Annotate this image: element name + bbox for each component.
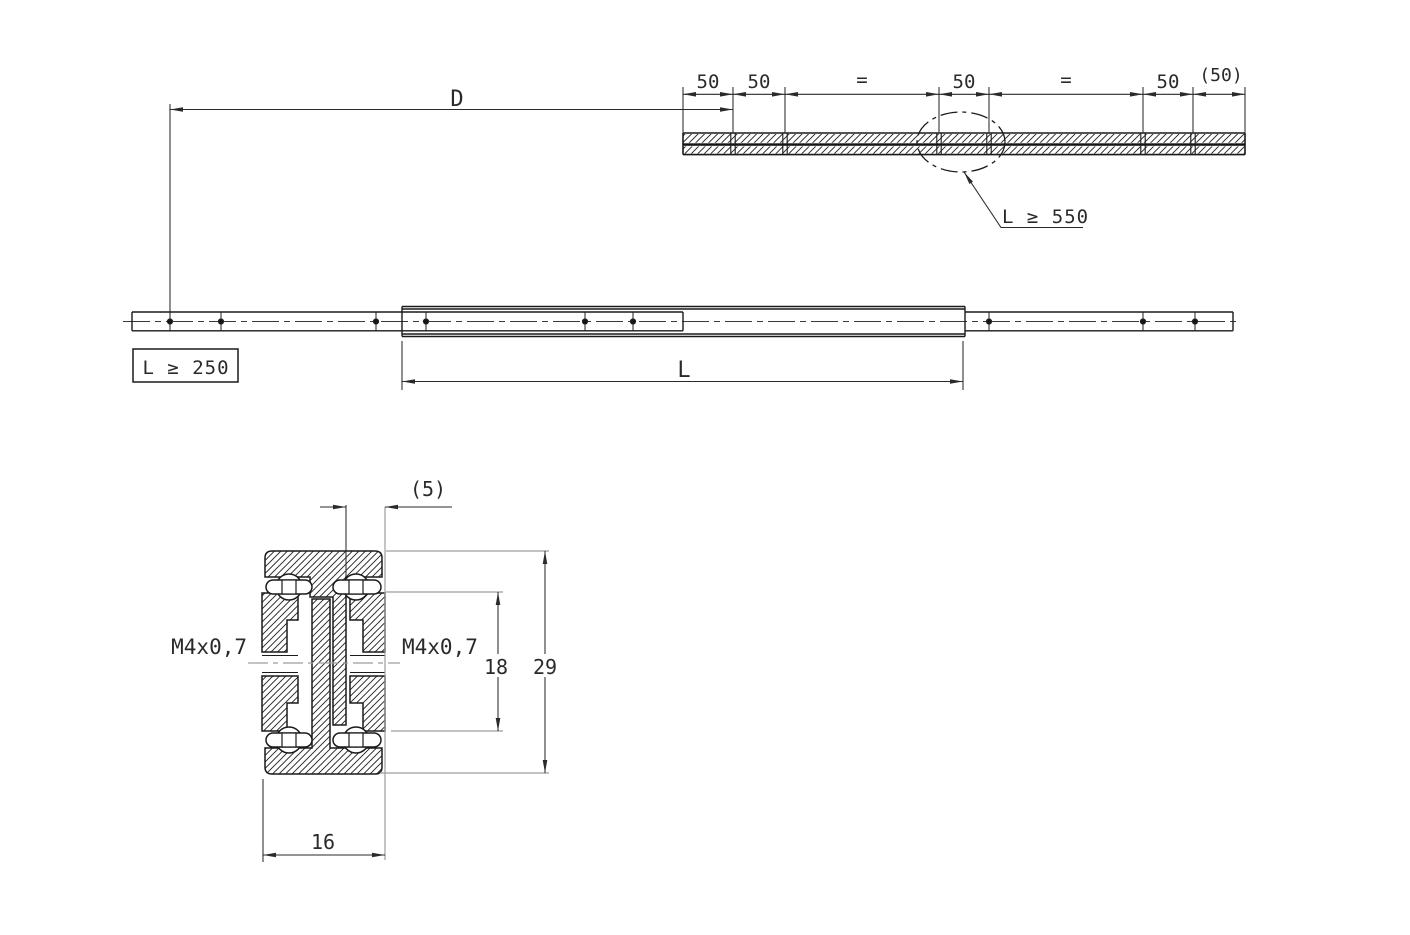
section-left-upper-block (262, 593, 298, 652)
section-view: (5) 18 29 16 M4x0,7 M4x0,7 (171, 477, 560, 862)
gray-reference-lines (380, 507, 549, 860)
mounting-hole (423, 319, 428, 324)
min-length-note: L ≥ 250 (142, 357, 229, 379)
mounting-hole (373, 319, 378, 324)
offset-dimension: (5) (320, 477, 452, 509)
mounting-hole (1192, 319, 1197, 324)
drawing-canvas: 50 50 = 50 = 50 (50) D L ≥ 550 (0, 0, 1410, 935)
plan-hatch-top-band (683, 134, 1245, 143)
dim29-label: 29 (533, 655, 557, 679)
plan-view (683, 133, 1245, 155)
plan-center-strip (683, 143, 1245, 146)
inner-height-dimension: 18 (481, 592, 511, 731)
offset-label: (5) (410, 477, 446, 501)
mounting-hole (986, 319, 991, 324)
mounting-hole (1140, 319, 1145, 324)
bearing-cage-slot (282, 733, 296, 747)
bearing-cage-slot (282, 580, 296, 594)
chain-label-eq-2: = (1060, 69, 1071, 91)
detail-callout: L ≥ 550 (917, 112, 1089, 228)
chain-label-50-3: 50 (953, 71, 976, 93)
chain-label-50-2: 50 (748, 71, 771, 93)
d-dimension: D (170, 87, 733, 321)
mounting-hole (582, 319, 587, 324)
section-right-lower-block (350, 676, 385, 731)
l-dimension: L (402, 341, 963, 390)
chain-extension-lines (683, 87, 1245, 133)
mounting-hole (167, 319, 172, 324)
detail-note: L ≥ 550 (1002, 206, 1089, 228)
chain-label-eq-1: = (856, 69, 867, 91)
mounting-hole (218, 319, 223, 324)
width-dimension: 16 (263, 830, 385, 857)
thread-label-left: M4x0,7 (171, 635, 247, 659)
chain-label-50-paren: (50) (1199, 65, 1242, 86)
plan-dimension-chain: 50 50 = 50 = 50 (50) (683, 65, 1245, 133)
d-label: D (450, 87, 463, 112)
section-left-lower-block (262, 676, 298, 731)
dim16-label: 16 (311, 830, 335, 854)
dim18-label: 18 (484, 655, 508, 679)
outer-height-dimension: 29 (530, 551, 560, 773)
detail-leader-arrow (964, 172, 973, 184)
plan-hatch-bottom-band (683, 146, 1245, 153)
side-view: L ≥ 250 L (123, 307, 1240, 391)
thread-label-right: M4x0,7 (402, 635, 478, 659)
chain-label-50-4: 50 (1157, 71, 1180, 93)
d-dimension-lines (170, 104, 733, 321)
bearing-cage-slot (349, 733, 363, 747)
section-right-upper-block (350, 593, 385, 652)
mounting-hole (630, 319, 635, 324)
bearing-cage-slot (349, 580, 363, 594)
chain-label-50-1: 50 (697, 71, 720, 93)
l-label: L (677, 358, 690, 383)
technical-drawing: 50 50 = 50 = 50 (50) D L ≥ 550 (0, 0, 1410, 935)
